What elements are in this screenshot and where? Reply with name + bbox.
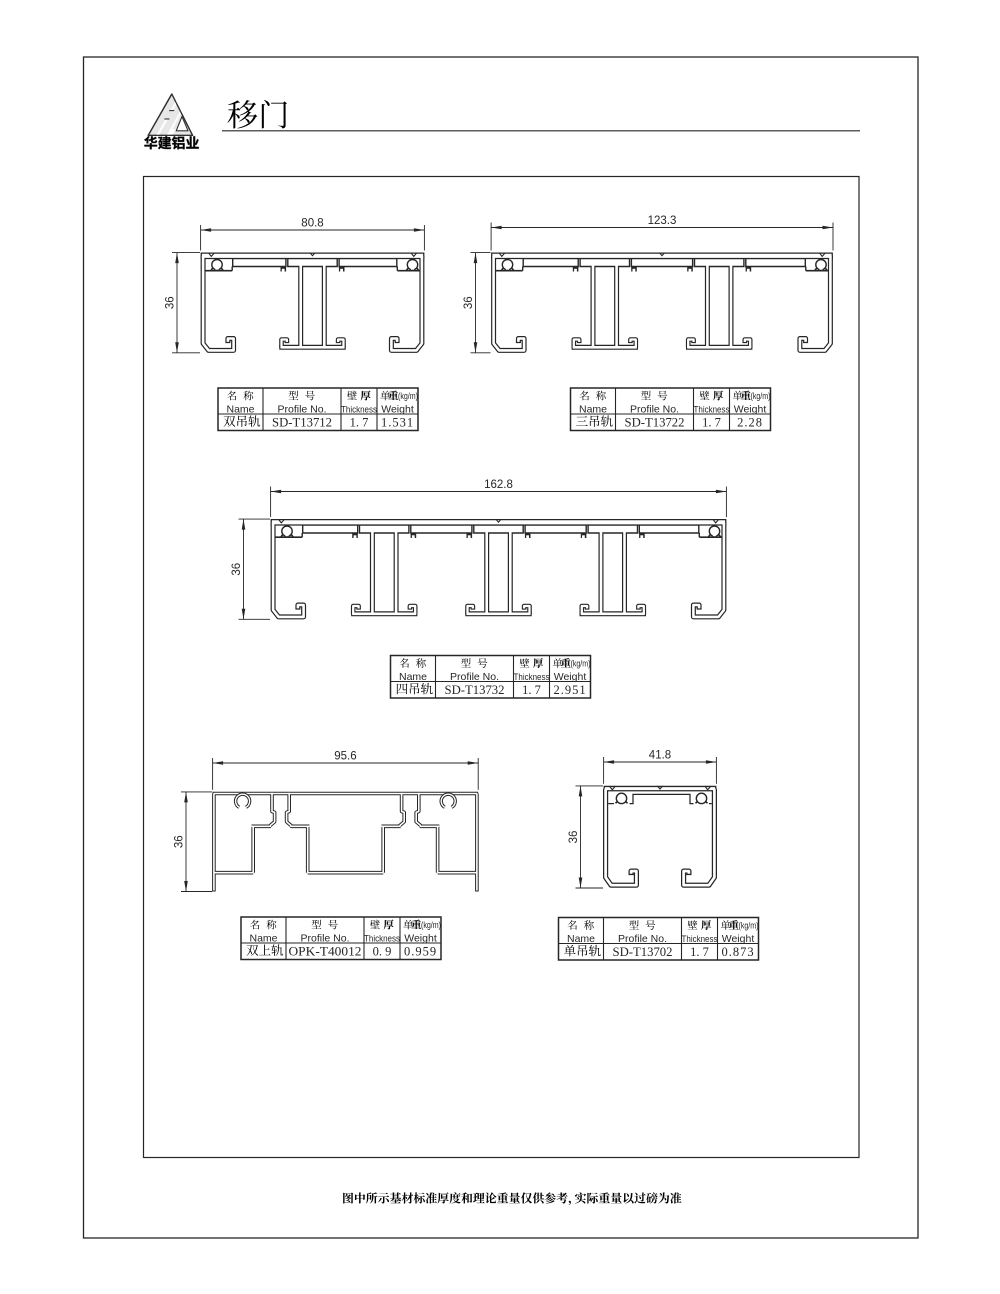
svg-text:36: 36	[568, 831, 580, 844]
svg-text:123.3: 123.3	[648, 215, 677, 227]
svg-text:Weight: Weight	[734, 404, 767, 416]
svg-text:36: 36	[231, 563, 243, 576]
svg-text:0. 9: 0. 9	[373, 944, 392, 958]
svg-text:1. 7: 1. 7	[690, 945, 709, 959]
svg-text:2.28: 2.28	[737, 415, 763, 429]
svg-text:Thickness: Thickness	[364, 934, 400, 945]
svg-text:Name: Name	[399, 671, 427, 683]
svg-text:Thickness: Thickness	[694, 405, 730, 416]
svg-text:Name: Name	[226, 404, 254, 416]
svg-text:Thickness: Thickness	[514, 672, 550, 683]
svg-text:(kg/m): (kg/m)	[398, 391, 418, 401]
svg-text:1. 7: 1. 7	[350, 415, 369, 429]
svg-text:SD-T13702: SD-T13702	[613, 944, 673, 959]
svg-text:1. 7: 1. 7	[702, 415, 721, 429]
svg-text:(kg/m): (kg/m)	[739, 921, 759, 931]
svg-text:0.959: 0.959	[404, 944, 437, 958]
svg-text:SD-T13722: SD-T13722	[625, 414, 685, 429]
svg-text:(kg/m): (kg/m)	[571, 659, 591, 669]
svg-text:Weight: Weight	[381, 404, 414, 416]
svg-text:1.531: 1.531	[381, 415, 414, 429]
svg-text:(kg/m): (kg/m)	[421, 920, 441, 930]
svg-text:Weight: Weight	[554, 671, 587, 683]
svg-text:36: 36	[463, 296, 475, 309]
svg-text:1. 7: 1. 7	[522, 683, 541, 697]
svg-text:Name: Name	[249, 933, 277, 945]
svg-text:SD-T13732: SD-T13732	[445, 682, 505, 697]
svg-text:95.6: 95.6	[334, 751, 356, 763]
svg-text:Name: Name	[579, 404, 607, 416]
svg-text:Weight: Weight	[404, 933, 437, 945]
svg-text:OPK-T40012: OPK-T40012	[289, 943, 362, 958]
svg-text:Thickness: Thickness	[682, 934, 718, 945]
svg-text:SD-T13712: SD-T13712	[272, 414, 332, 429]
svg-text:Weight: Weight	[722, 933, 755, 945]
svg-text:41.8: 41.8	[649, 750, 671, 762]
svg-text:(kg/m): (kg/m)	[751, 391, 771, 401]
svg-text:80.8: 80.8	[301, 218, 323, 230]
svg-text:Thickness: Thickness	[341, 405, 377, 416]
svg-text:36: 36	[174, 835, 186, 848]
svg-text:162.8: 162.8	[484, 479, 513, 491]
svg-text:2.951: 2.951	[553, 683, 586, 697]
svg-text:36: 36	[165, 296, 177, 309]
svg-text:0.873: 0.873	[721, 945, 754, 959]
svg-text:Name: Name	[567, 933, 595, 945]
